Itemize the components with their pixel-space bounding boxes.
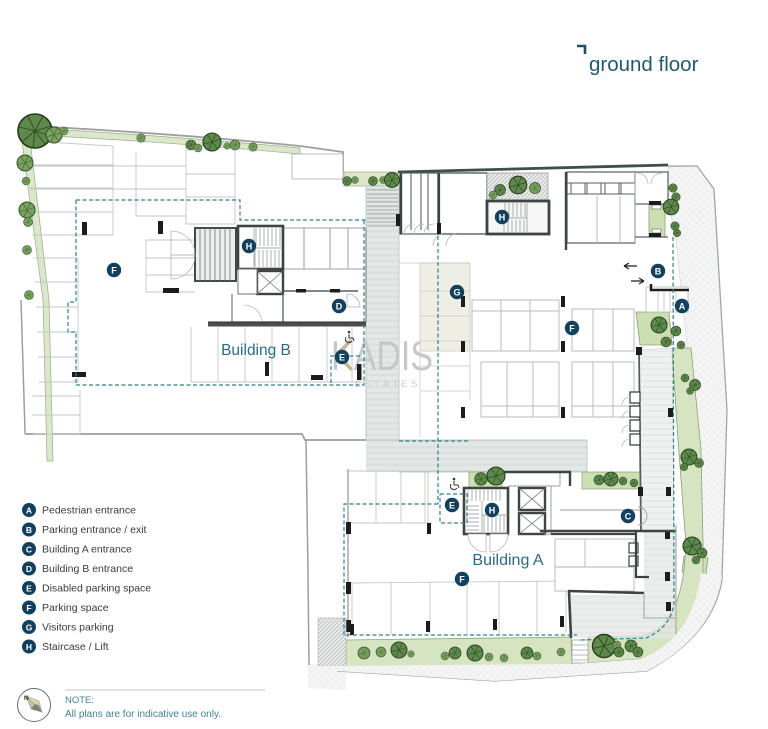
svg-text:G: G [26, 623, 33, 633]
svg-text:Pedestrian entrance: Pedestrian entrance [42, 505, 136, 517]
svg-text:Parking entrance / exit: Parking entrance / exit [42, 524, 147, 536]
svg-text:H: H [26, 642, 32, 652]
svg-text:H: H [246, 242, 253, 252]
svg-text:D: D [26, 564, 32, 574]
svg-text:E: E [339, 353, 345, 363]
svg-text:ground floor: ground floor [589, 53, 699, 76]
svg-text:H: H [489, 506, 496, 516]
svg-text:Disabled parking space: Disabled parking space [42, 583, 151, 595]
svg-text:E: E [449, 501, 455, 511]
svg-text:N: N [24, 695, 29, 702]
svg-text:D: D [336, 302, 343, 312]
svg-text:A: A [26, 506, 32, 516]
svg-text:H: H [499, 213, 506, 223]
svg-text:C: C [26, 545, 32, 555]
svg-text:Visitors parking: Visitors parking [42, 622, 114, 634]
svg-text:B: B [26, 525, 32, 535]
svg-text:Staircase / Lift: Staircase / Lift [42, 641, 109, 653]
svg-text:NOTE:: NOTE: [65, 695, 94, 706]
svg-text:C: C [625, 512, 632, 522]
svg-text:F: F [459, 575, 465, 585]
svg-text:All plans are for indicative u: All plans are for indicative use only. [65, 709, 221, 720]
svg-text:F: F [569, 324, 575, 334]
svg-text:F: F [26, 603, 31, 613]
svg-text:ESTATES: ESTATES [355, 379, 421, 390]
svg-text:Building A: Building A [472, 552, 543, 569]
svg-text:B: B [655, 267, 662, 277]
svg-text:A: A [679, 302, 686, 312]
svg-text:Building B: Building B [221, 342, 291, 359]
svg-text:G: G [453, 288, 460, 298]
svg-text:F: F [111, 266, 117, 276]
svg-text:Parking space: Parking space [42, 602, 109, 614]
svg-text:Building A entrance: Building A entrance [42, 544, 132, 556]
svg-text:Building B entrance: Building B entrance [42, 563, 133, 575]
svg-text:E: E [26, 584, 32, 594]
